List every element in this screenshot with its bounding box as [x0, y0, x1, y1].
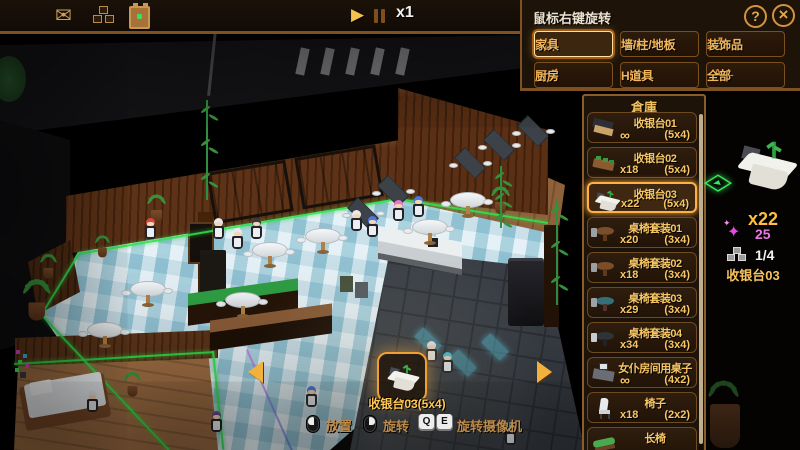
- register-03-icon: [591, 186, 619, 212]
- leaf: [50, 254, 58, 264]
- item-icon-part: [591, 228, 597, 237]
- plant-fern: [37, 254, 59, 281]
- round-table: [305, 228, 341, 256]
- round-table: [252, 242, 288, 270]
- table-set-1-icon: [590, 220, 618, 246]
- key-q-icon: Q: [419, 414, 434, 429]
- bamboo-stalk: [556, 200, 558, 305]
- plant-fern: [18, 279, 54, 324]
- leaf: [558, 248, 569, 256]
- chair-icon: [590, 395, 618, 421]
- char-apron: [308, 396, 315, 405]
- char-apron: [395, 210, 402, 219]
- espresso-machine: [508, 258, 544, 326]
- pixel: [15, 368, 19, 372]
- chair: [445, 226, 455, 232]
- character: [144, 218, 158, 244]
- white-chair: [372, 191, 381, 196]
- category-label: H道具: [621, 67, 654, 84]
- chair: [163, 288, 173, 294]
- plant-pot: [98, 248, 107, 258]
- character: [366, 216, 380, 242]
- character: [250, 218, 264, 244]
- chair: [120, 329, 130, 335]
- mail-icon[interactable]: ✉: [55, 3, 72, 28]
- char-apron: [89, 401, 96, 410]
- character: [86, 391, 100, 417]
- item-icon-part: [603, 304, 607, 311]
- rotate-hint-label: 鼠标右键旋转: [533, 8, 611, 27]
- category-label: 墙/柱/地板: [621, 36, 676, 53]
- speed-indicator[interactable]: x1: [396, 4, 414, 22]
- item-size: (3x4): [664, 304, 690, 316]
- chair: [403, 228, 413, 234]
- table-base: [424, 241, 436, 245]
- pause-icon[interactable]: [381, 9, 385, 23]
- leaf: [208, 113, 219, 121]
- item-count: x18: [620, 269, 638, 281]
- item-count: x34: [620, 339, 638, 351]
- item-icon-part: [591, 333, 597, 342]
- round-table: [450, 192, 486, 220]
- category-label: 全部: [707, 67, 731, 84]
- camera-hint-label: 旋转摄像机: [457, 416, 522, 435]
- table-base: [462, 214, 474, 218]
- category-button-4[interactable]: 厨房: [534, 62, 613, 88]
- chair: [216, 301, 226, 307]
- leaf: [134, 372, 142, 382]
- warehouse-item[interactable]: 桌椅套装02x18(3x4): [587, 252, 697, 283]
- plant-pot: [128, 386, 138, 397]
- item-size: (3x4): [664, 339, 690, 351]
- delivery-box-icon[interactable]: [129, 6, 150, 29]
- pixel-pot: [20, 372, 26, 378]
- leaf: [208, 147, 219, 155]
- carousel-left-arrow[interactable]: [248, 361, 263, 383]
- character: [212, 218, 226, 244]
- table-base: [99, 344, 111, 348]
- white-chair: [478, 145, 487, 150]
- top-bar: ✉ ▶ x1: [0, 0, 522, 34]
- item-icon-part: [595, 189, 622, 212]
- char-apron: [253, 228, 260, 237]
- item-icon-part: [596, 156, 601, 160]
- round-table: [87, 322, 123, 350]
- category-label: 厨房: [535, 67, 559, 84]
- warehouse-item[interactable]: 女仆房间用桌子∞(4x2): [587, 357, 697, 388]
- white-chair: [449, 163, 458, 168]
- category-label: 家具: [535, 36, 559, 53]
- item-size: (5x4): [664, 129, 690, 141]
- table-base: [237, 314, 249, 318]
- item-size: (3x4): [664, 234, 690, 246]
- item-count: ∞: [620, 129, 630, 141]
- place-hint-label: 放置: [326, 416, 352, 435]
- chair: [78, 331, 88, 337]
- held-item-label: 收银台03(5x4): [352, 395, 462, 412]
- char-apron: [215, 228, 222, 237]
- round-table: [130, 281, 166, 309]
- help-button[interactable]: ?: [744, 5, 767, 28]
- pixel: [18, 360, 22, 364]
- category-button-6[interactable]: ALL全部: [706, 62, 785, 88]
- item-size: (5x4): [663, 198, 689, 210]
- gem-sparkle-icon: ✦✦: [727, 222, 740, 242]
- item-size: (5x4): [664, 164, 690, 176]
- stock-count: 1/4: [755, 247, 774, 263]
- item-icon-part: [603, 339, 607, 346]
- char-apron: [353, 220, 360, 229]
- character: [210, 411, 224, 437]
- key-e-icon: E: [437, 414, 452, 429]
- plant-pot: [44, 268, 54, 279]
- item-icon-part: [599, 363, 608, 370]
- white-chair: [512, 143, 521, 148]
- plant-fern: [92, 235, 111, 259]
- item-icon-part: [603, 234, 607, 241]
- char-apron: [369, 226, 376, 235]
- category-label: 装饰品: [707, 36, 743, 53]
- category-button-1[interactable]: 家具: [534, 31, 613, 57]
- category-button-2[interactable]: 墙/柱/地板: [620, 31, 699, 57]
- carousel-right-arrow[interactable]: [537, 361, 552, 383]
- round-table: [412, 219, 448, 247]
- pixel: [23, 354, 27, 358]
- character: [305, 386, 319, 412]
- category-button-5[interactable]: H道具: [620, 62, 699, 88]
- category-button-3[interactable]: 装饰品: [706, 31, 785, 57]
- trash-bin: [355, 282, 368, 298]
- table-set-2-icon: [590, 290, 618, 316]
- item-name: 长椅: [618, 430, 692, 446]
- register-01-icon: [590, 115, 618, 141]
- chair: [121, 290, 131, 296]
- mouse-left-icon: [306, 415, 320, 433]
- warehouse-scrollbar[interactable]: [699, 113, 703, 450]
- chair: [296, 237, 306, 243]
- item-size: (2x2): [664, 409, 690, 421]
- item-icon-part: [592, 368, 614, 381]
- item-size: (3x4): [664, 269, 690, 281]
- item-size: (4x2): [664, 374, 690, 386]
- warehouse-item[interactable]: 椅子x18(2x2): [587, 392, 697, 423]
- char-apron: [415, 206, 422, 215]
- chair: [338, 235, 348, 241]
- leaf: [158, 194, 167, 205]
- warehouse-item[interactable]: 桌椅套装03x29(3x4): [587, 287, 697, 318]
- selected-item-name: 收银台03: [706, 265, 800, 284]
- character: [350, 210, 364, 236]
- white-chair: [546, 129, 555, 134]
- leaf: [558, 283, 569, 291]
- item-count: x18: [620, 164, 638, 176]
- item-icon-part: [603, 269, 607, 276]
- warehouse-item[interactable]: 收银台03x22(5x4): [587, 182, 697, 213]
- chair: [285, 249, 295, 255]
- stock-boxes-icon: [727, 247, 747, 263]
- warehouse-item[interactable]: 收银台02x18(5x4): [587, 147, 697, 178]
- item-icon-part: [591, 298, 597, 307]
- char-apron: [147, 228, 154, 237]
- white-chair: [406, 189, 415, 194]
- plant-fern: [121, 372, 143, 399]
- item-count: x29: [620, 304, 638, 316]
- item-count: x20: [620, 234, 638, 246]
- close-button[interactable]: ×: [772, 4, 795, 27]
- item-icon-part: [600, 414, 602, 419]
- pixel: [25, 364, 29, 368]
- trash-bin: [340, 276, 353, 292]
- maid-desk-icon: [590, 360, 618, 386]
- table-base: [317, 250, 329, 254]
- table-set-1-icon: [590, 255, 618, 281]
- held-item-icon: [387, 363, 421, 393]
- leaf: [103, 235, 110, 244]
- mouse-right-icon: [363, 415, 377, 433]
- pixel: [16, 350, 20, 354]
- item-count: ∞: [620, 374, 630, 386]
- character: [425, 341, 439, 367]
- gem-cost: 25: [755, 226, 771, 242]
- build-menu-panel: 鼠标右键旋转 ? × 家具墙/柱/地板装饰品厨房H道具ALL全部: [520, 0, 800, 91]
- plant-pot: [29, 303, 46, 321]
- char-apron: [213, 421, 220, 430]
- item-count: x22: [621, 198, 639, 210]
- chair: [258, 299, 268, 305]
- white-chair: [483, 161, 492, 166]
- character: [392, 200, 406, 226]
- item-count: x18: [620, 409, 638, 421]
- character: [412, 196, 426, 222]
- rotate-marker-icon: [702, 176, 738, 195]
- chair: [441, 201, 451, 207]
- table-base: [142, 303, 154, 307]
- char-apron: [234, 238, 241, 247]
- char-apron: [507, 434, 514, 443]
- char-apron: [444, 362, 451, 371]
- warehouse-item[interactable]: 收银台01∞(5x4): [587, 112, 697, 143]
- warehouse-item[interactable]: 桌椅套装01x20(3x4): [587, 217, 697, 248]
- leaf: [39, 279, 52, 295]
- item-icon-part: [591, 263, 597, 272]
- game-viewport: ✉ ▶ x1 鼠标右键旋转 ? × 家具墙/柱/地板装饰品厨房H道具ALL全部 …: [0, 0, 800, 450]
- play-icon[interactable]: ▶: [351, 5, 364, 25]
- table-base: [264, 264, 276, 268]
- rotate-hint: 旋转: [383, 416, 409, 435]
- register-02-icon: [590, 150, 618, 176]
- character: [231, 228, 245, 254]
- table-set-3-icon: [590, 325, 618, 351]
- character: [441, 352, 455, 378]
- warehouse-panel: 倉庫 收银台01∞(5x4)收银台02x18(5x4)收银台03x22(5x4)…: [582, 94, 706, 450]
- bench-icon: [590, 430, 618, 450]
- warehouse-item[interactable]: 长椅: [587, 427, 697, 450]
- white-chair: [512, 131, 521, 136]
- warehouse-item[interactable]: 桌椅套装04x34(3x4): [587, 322, 697, 353]
- pause-icon[interactable]: [374, 9, 378, 23]
- char-apron: [428, 351, 435, 360]
- pixel-plant: [14, 348, 32, 378]
- round-table: [225, 292, 261, 320]
